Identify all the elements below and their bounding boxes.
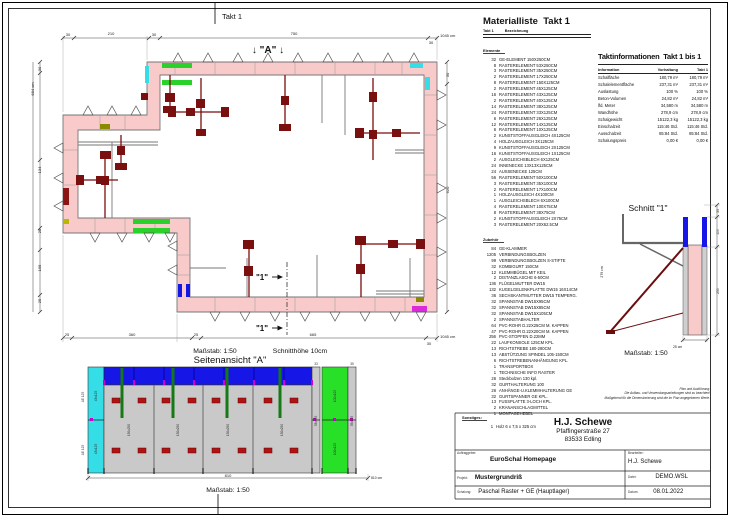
section-view: Schnitt "1" 35 100 250 25 cm 279 cm Maßs… [600, 203, 720, 357]
label-gray1: 33x125 [314, 416, 318, 427]
label-cyan-2: 43x125 [94, 444, 98, 455]
disclaimer: Plan und Ausführung: Die Aufbau- und Ver… [540, 387, 710, 400]
plan-scale: Maßstab: 1:50 [193, 348, 237, 355]
company-address1: Pfaffingerstraße 27 [455, 428, 711, 436]
dim-top-750: 750 [291, 31, 298, 36]
material-item: 3 RASTERELEMENT 20X62.5CM [483, 222, 615, 228]
dim-bottom-665: 665 [310, 332, 317, 337]
gray-partitions [78, 75, 424, 297]
takt-info-row: Wandhöhe 278,9 cm 278,9 cm [598, 109, 708, 116]
col-information: Information [598, 67, 642, 72]
info-vorhaltung: 34,580 m [642, 102, 678, 109]
section-wall [688, 245, 702, 335]
takt-info-rows: Schalfläche 180,79 m² 180,79 m² Schalele… [598, 74, 708, 144]
disclaimer-line3: Maßgebend für die Dimensionierung sind d… [540, 396, 710, 400]
info-vorhaltung: 85:84 Std. [642, 130, 678, 137]
info-takt1: 115:46 Std. [678, 123, 708, 130]
dim-top-30b: 30 [152, 32, 157, 37]
material-list-title: Materialliste Takt 1 [483, 16, 615, 27]
info-label: Schalfläche [598, 74, 642, 81]
datum-label: Datum: [628, 490, 638, 494]
info-takt1: 15122,3 kg [678, 116, 708, 123]
section-topping-left [683, 217, 688, 247]
elevation-scale: Maßstab: 1:50 [206, 487, 250, 494]
info-vorhaltung: 237,31 m² [642, 81, 678, 88]
auftraggeber-value: EuroSchal Homepage [490, 456, 556, 463]
dim-left-25b: 25 [37, 298, 42, 303]
column-bezeichnung: Bezeichnung [505, 29, 529, 33]
item-name: RASTERELEMENT 20X62.5CM [499, 222, 558, 228]
dim-bottom-total: 1045 cm [440, 334, 456, 339]
datum-value: 08.01.2022 [653, 489, 683, 495]
label-col-dim2: 35 [350, 362, 354, 366]
takt-info-row: Schalfläche 180,79 m² 180,79 m² [598, 74, 708, 81]
column-takt: Takt 1 [483, 29, 494, 33]
elevation-dim-810: 810 [225, 473, 232, 478]
projekt-row: Projekt: Mustergrundriß [457, 474, 522, 481]
dim-right-620: 620 [445, 186, 450, 193]
brace-symbols [54, 53, 446, 321]
label-ae125-1: AE 125 [81, 392, 85, 403]
label-ge-1: 150x250 [127, 424, 131, 436]
info-label: Wandhöhe [598, 109, 642, 116]
takt-info-row: Auslastung 100 % 100 % [598, 88, 708, 95]
info-label: Einschalzeit [598, 123, 642, 130]
plan-cut-height: Schnitthöhe 10cm [273, 348, 328, 355]
projekt-value: Mustergrundriß [475, 474, 522, 481]
schalung-label: Schalung: [457, 490, 471, 494]
header-rule [483, 34, 591, 38]
label-green-2: 100x125 [333, 443, 337, 455]
view-marker-a: ↓ "A" ↓ [252, 45, 284, 56]
dim-top-210: 210 [108, 31, 115, 36]
floor-plan: Takt 1 [30, 12, 456, 355]
info-takt1: 34,580 m [678, 102, 708, 109]
section-form-left [683, 245, 688, 335]
bearbeiter-label: Bearbeiter: [628, 451, 644, 455]
takt-info-header: Information Vorhaltung Takt 1 [598, 65, 708, 74]
label-cyan-1: 43x125 [94, 391, 98, 402]
section-topping-right [702, 217, 707, 247]
stop-end-elements [76, 75, 425, 297]
info-takt1: 85:84 Std. [678, 130, 708, 137]
info-vorhaltung: 180,79 m² [642, 74, 678, 81]
label-gray2: 35x125 [350, 416, 354, 427]
material-list: Materialliste Takt 1 Takt 1 Bezeichnung … [483, 16, 615, 417]
dim-top-30c: 30 [429, 40, 434, 45]
cut-label-bottom: "1" [256, 324, 268, 333]
section-dim-35: 35 [716, 209, 720, 213]
dim-right-30: 30 [445, 72, 450, 77]
dim-bottom-25a: 25 [65, 332, 70, 337]
section-dim-250: 250 [716, 288, 720, 294]
info-takt1: 0,00 € [678, 137, 708, 144]
company-block: H.J. Schewe Pfaffingerstraße 27 83533 Ed… [455, 417, 711, 443]
company-name: H.J. Schewe [455, 417, 711, 428]
info-label: Auslastung [598, 88, 642, 95]
schalung-row: Schalung: Paschal Raster + GE (Hauptlage… [457, 489, 569, 495]
info-takt1: 100 % [678, 88, 708, 95]
elevation-dim-total: 810 cm [371, 476, 382, 480]
plan-title: Takt 1 [222, 12, 242, 21]
elemente-items: 32 GE-ELEMENT 150X250CM 8 RASTERELEMENT … [483, 57, 615, 228]
section-title: Schnitt "1" [628, 203, 667, 213]
info-takt1: 237,31 m² [678, 81, 708, 88]
label-green-1: 100x125 [333, 390, 337, 402]
dim-top-30a: 30 [66, 32, 71, 37]
info-label: lfd. Meter [598, 102, 642, 109]
info-takt1: 278,9 cm [678, 109, 708, 116]
info-vorhaltung: 115:46 Std. [642, 123, 678, 130]
info-label: Schalelementfläche [598, 81, 642, 88]
takt-info: Taktinformationen Takt 1 bis 1 Informati… [598, 52, 710, 144]
info-vorhaltung: 278,9 cm [642, 109, 678, 116]
bearbeiter-value: H.J. Schewe [628, 459, 662, 465]
label-ge-4: 150x250 [280, 424, 284, 436]
dim-left-134: 134 [37, 166, 42, 173]
takt-info-row: Schalgewicht 15122,3 kg 15122,3 kg [598, 116, 708, 123]
col-vorhaltung: Vorhaltung [642, 67, 678, 72]
push-pull-brace [606, 248, 683, 334]
dim-top-total: 1045 cm [440, 33, 456, 38]
datum-row: Datum: 08.01.2022 [628, 489, 683, 495]
takt-info-table: Information Vorhaltung Takt 1 Schalfläch… [598, 64, 708, 144]
label-ae125-2: AE 125 [81, 445, 85, 456]
info-label: Schalungspreis [598, 137, 642, 144]
info-vorhaltung: 0,00 € [642, 137, 678, 144]
group-elemente: Elemente [483, 48, 505, 54]
info-vorhaltung: 24,82 m³ [642, 95, 678, 102]
takt-info-row: Beton-Volumen 24,82 m³ 24,82 m³ [598, 95, 708, 102]
elevation-title: Seitenansicht "A" [194, 355, 267, 366]
takt-info-row: Schalungspreis 0,00 € 0,00 € [598, 137, 708, 144]
drawing-sheet: Takt 1 [0, 0, 730, 517]
dim-bottom-30: 30 [427, 341, 432, 346]
section-dim-25: 25 cm [673, 345, 682, 349]
info-label: Ausschalzeit [598, 130, 642, 137]
info-label: Beton-Volumen [598, 95, 642, 102]
dim-bottom-360: 360 [129, 332, 136, 337]
item-qty: 3 [483, 222, 496, 228]
label-col-dim1: 33 [314, 362, 318, 366]
auftraggeber-label: Auftraggeber: [457, 451, 476, 455]
datei-row: Datei: DEMO.WSL [628, 474, 688, 480]
label-ge-3: 150x250 [226, 424, 230, 436]
section-form-right [702, 245, 707, 335]
company-address2: 83533 Edling [455, 436, 711, 444]
info-vorhaltung: 15122,3 kg [642, 116, 678, 123]
dim-left-195: 195 [37, 264, 42, 271]
section-scale: Maßstab: 1:50 [624, 350, 668, 357]
takt-info-row: Einschalzeit 115:46 Std. 115:46 Std. [598, 123, 708, 130]
takt-info-row: Schalelementfläche 237,31 m² 237,31 m² [598, 81, 708, 88]
info-vorhaltung: 100 % [642, 88, 678, 95]
info-takt1: 180,79 m² [678, 74, 708, 81]
col-takt1: Takt 1 [678, 67, 708, 72]
dim-left-30: 30 [37, 66, 42, 71]
takt-info-row: Ausschalzeit 85:84 Std. 85:84 Std. [598, 130, 708, 137]
section-dim-100: 100 [716, 229, 720, 235]
datei-label: Datei: [628, 475, 636, 479]
info-takt1: 24,82 m³ [678, 95, 708, 102]
elevation-dimension: 810 810 cm [86, 473, 382, 481]
dim-bottom-25b: 25 [194, 332, 199, 337]
elevation-view: Seitenansicht "A" [81, 355, 382, 494]
takt-info-title: Taktinformationen Takt 1 bis 1 [598, 52, 710, 61]
info-label: Schalgewicht [598, 116, 642, 123]
takt-info-row: lfd. Meter 34,580 m 34,580 m [598, 102, 708, 109]
schalung-value: Paschal Raster + GE (Hauptlager) [478, 489, 569, 495]
cut-label-top: "1" [256, 273, 268, 282]
group-zubehoer: Zubehör [483, 237, 504, 243]
dim-left-total: 684 cm [30, 82, 35, 96]
datei-value: DEMO.WSL [655, 474, 688, 480]
label-ge-2: 150x250 [176, 424, 180, 436]
dim-left-25a: 25 [37, 228, 42, 233]
projekt-label: Projekt: [457, 476, 468, 480]
